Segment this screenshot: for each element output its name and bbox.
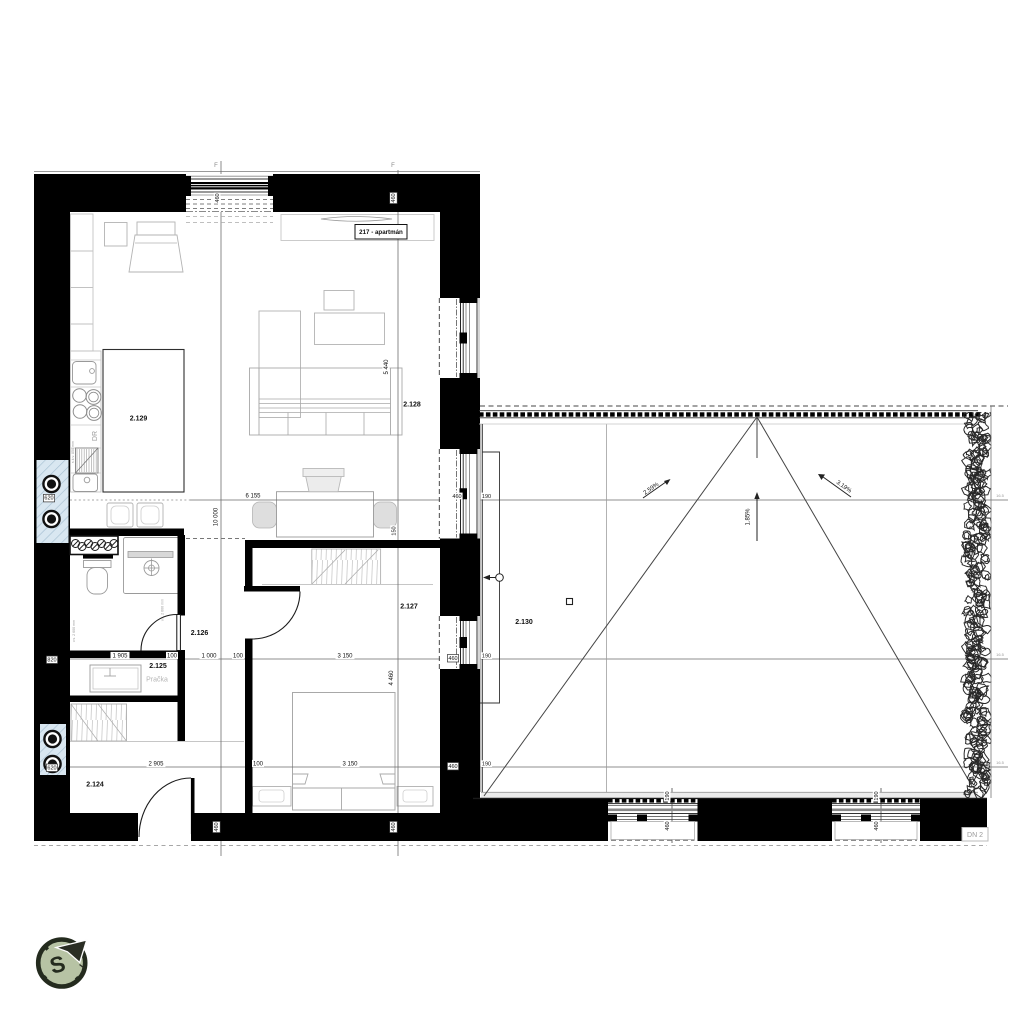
svg-text:190: 190 <box>665 791 671 800</box>
svg-text:2.124: 2.124 <box>86 782 104 789</box>
svg-text:16.5: 16.5 <box>996 652 1005 657</box>
svg-text:460: 460 <box>665 821 671 830</box>
svg-text:460: 460 <box>214 822 220 831</box>
svg-text:190: 190 <box>482 762 491 768</box>
svg-text:2.129: 2.129 <box>130 416 148 423</box>
svg-text:460: 460 <box>452 494 461 500</box>
svg-text:s.k.v. 850 mm: s.k.v. 850 mm <box>71 441 75 463</box>
svg-text:460: 460 <box>391 822 397 831</box>
svg-text:460: 460 <box>448 764 457 770</box>
svg-text:16.5: 16.5 <box>996 493 1005 498</box>
svg-text:3 150: 3 150 <box>342 762 358 768</box>
svg-text:2.130: 2.130 <box>515 619 533 626</box>
svg-text:DN 2: DN 2 <box>967 832 983 839</box>
svg-text:2.126: 2.126 <box>191 630 209 637</box>
svg-text:460: 460 <box>391 193 397 202</box>
svg-text:3 150: 3 150 <box>337 654 353 660</box>
svg-text:620: 620 <box>47 765 56 771</box>
svg-text:2 905: 2 905 <box>148 762 164 768</box>
svg-text:150: 150 <box>392 526 398 535</box>
svg-text:5 440: 5 440 <box>384 359 390 375</box>
svg-text:190: 190 <box>482 494 491 500</box>
svg-text:2.128: 2.128 <box>403 402 421 409</box>
svg-text:DR: DR <box>92 431 99 441</box>
svg-text:10 000: 10 000 <box>214 507 220 526</box>
svg-text:1 905: 1 905 <box>112 654 128 660</box>
svg-text:4 460: 4 460 <box>389 670 395 686</box>
svg-text:Pračka: Pračka <box>146 677 168 684</box>
svg-text:v.s. 2 600 mm: v.s. 2 600 mm <box>72 620 76 642</box>
svg-text:190: 190 <box>874 791 880 800</box>
svg-text:217 - apartmán: 217 - apartmán <box>359 229 403 236</box>
svg-text:1.85%: 1.85% <box>746 508 752 526</box>
svg-text:620: 620 <box>44 496 53 502</box>
svg-text:100: 100 <box>233 654 244 660</box>
svg-text:2.127: 2.127 <box>400 604 418 611</box>
svg-text:460: 460 <box>448 656 457 662</box>
svg-text:1 000: 1 000 <box>201 654 217 660</box>
svg-text:2.125: 2.125 <box>149 663 167 670</box>
svg-text:16.5: 16.5 <box>996 760 1005 765</box>
svg-text:6 155: 6 155 <box>245 494 261 500</box>
svg-text:F: F <box>391 163 395 169</box>
svg-text:100: 100 <box>167 654 178 660</box>
svg-text:460: 460 <box>215 193 221 202</box>
svg-text:100: 100 <box>253 762 264 768</box>
svg-text:190: 190 <box>482 654 491 660</box>
svg-text:460: 460 <box>874 821 880 830</box>
svg-text:820: 820 <box>47 657 56 663</box>
svg-text:F: F <box>214 163 218 169</box>
